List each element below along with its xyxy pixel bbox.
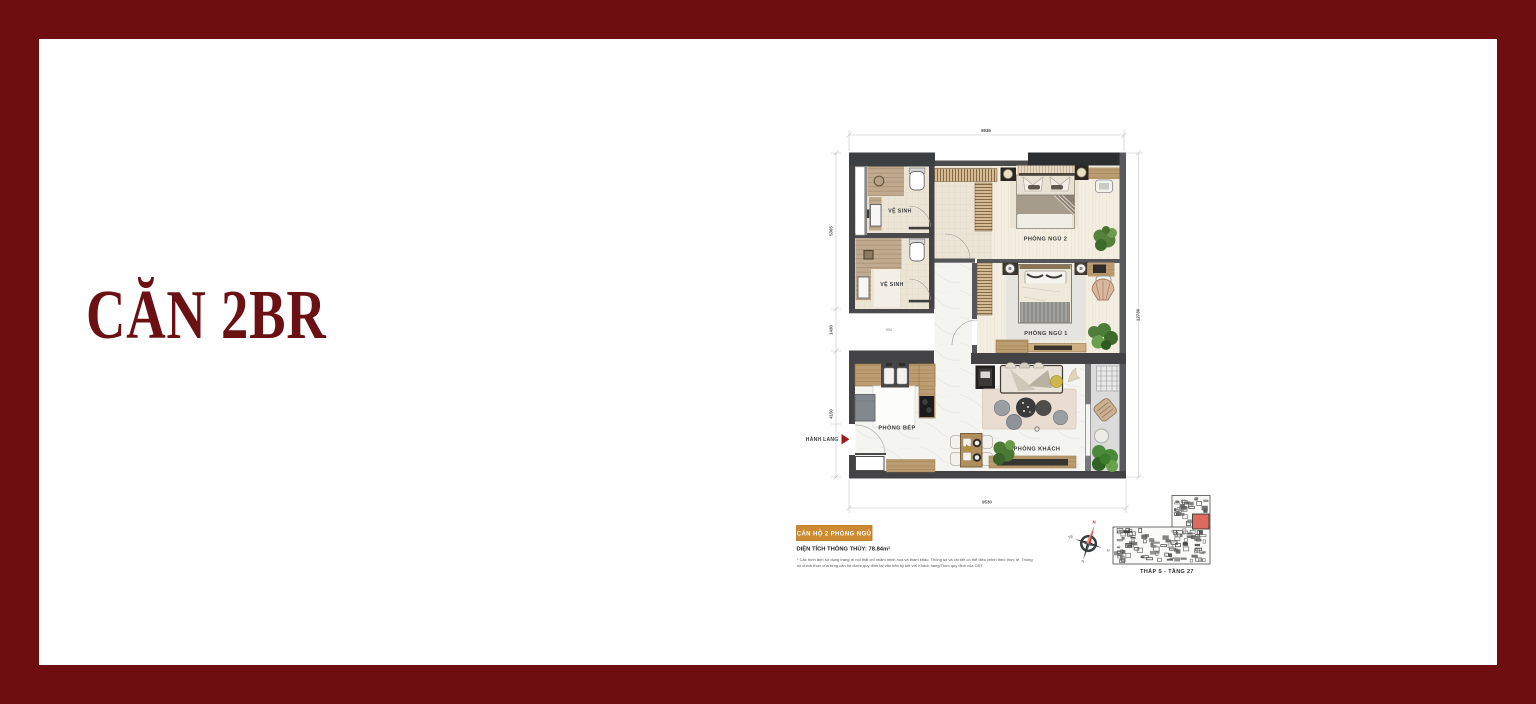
svg-text:PHÒNG KHÁCH: PHÒNG KHÁCH	[1014, 445, 1061, 453]
svg-text:1430: 1430	[829, 325, 834, 335]
svg-text:THÁP S - TẦNG 27: THÁP S - TẦNG 27	[1140, 568, 1194, 575]
svg-text:VỆ SINH: VỆ SINH	[880, 280, 904, 288]
svg-text:N: N	[1093, 520, 1096, 525]
svg-text:4150: 4150	[829, 409, 834, 419]
svg-text:9936: 9936	[981, 128, 991, 133]
svg-text:VỆ SINH: VỆ SINH	[888, 207, 912, 215]
svg-text:12730: 12730	[1136, 308, 1141, 321]
svg-text:Đ: Đ	[1107, 549, 1110, 553]
svg-text:PHÒNG BẾP: PHÒNG BẾP	[878, 424, 915, 432]
svg-text:số chính thức của từng căn hộ: số chính thức của từng căn hộ được quy đ…	[797, 563, 984, 568]
svg-text:PHÒNG NGỦ 1: PHÒNG NGỦ 1	[1024, 329, 1068, 337]
svg-text:PHÒNG NGỦ 2: PHÒNG NGỦ 2	[1024, 235, 1068, 243]
svg-text:TB: TB	[1068, 535, 1074, 540]
svg-text:N: N	[1082, 560, 1085, 564]
svg-text:850: 850	[886, 328, 892, 332]
svg-text:HÀNH LANG: HÀNH LANG	[806, 436, 839, 443]
svg-text:* Các hình ảnh sử dụng trang t: * Các hình ảnh sử dụng trang trí nội thấ…	[797, 557, 1033, 562]
svg-text:5305: 5305	[829, 226, 834, 236]
svg-text:9530: 9530	[982, 500, 992, 505]
svg-text:CĂN HỘ 2 PHÒNG NGỦ: CĂN HỘ 2 PHÒNG NGỦ	[797, 530, 872, 538]
svg-text:DIỆN TÍCH THÔNG THỦY: 78.84m²: DIỆN TÍCH THÔNG THỦY: 78.84m²	[797, 545, 891, 553]
